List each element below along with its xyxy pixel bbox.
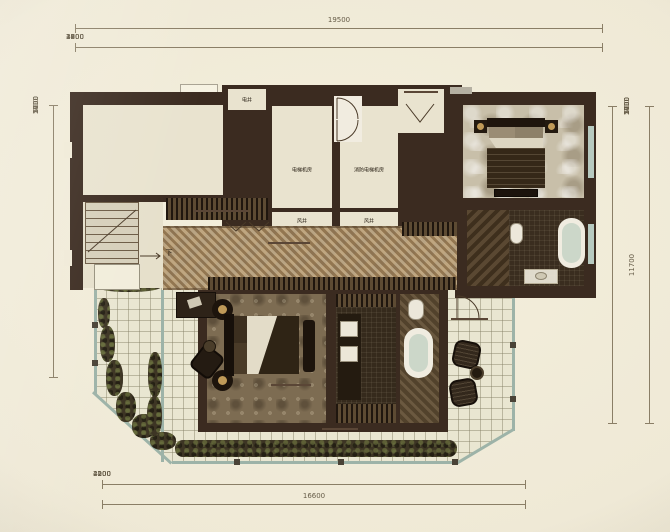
floor-plan-photo: 下 电井 电梯机房 消防电梯机房 风井 风井 水管井 衣帽间 CLOAKROOM… [0, 0, 670, 532]
corridor-label: 过道 CORRIDOR [268, 242, 310, 244]
cloakroom-label-zh: 衣帽间 [195, 211, 216, 212]
dimension-bottom-segments: 21002000420042004100 [102, 470, 526, 490]
water-shaft-door-icon [406, 104, 434, 122]
dimension-top-segments: 1000260012002400480038003700 [75, 33, 603, 53]
balcony-bottom-label-en: BALCONY [323, 429, 344, 430]
dimension-right-total-value: 11700 [628, 254, 636, 276]
water-pipe-shaft-label-zh: 水管井 [405, 92, 420, 93]
cloakroom-label: 衣帽间 CLOAKROOM [194, 210, 248, 212]
air-shaft-b-label: 风井 [364, 218, 374, 225]
dimension-right-total: 11700 [634, 106, 656, 424]
balcony-bottom-label: 阳台 BALCONY [322, 428, 358, 430]
fire-elevator-machine-room-label: 消防电梯机房 [354, 167, 384, 174]
stair-break-line [88, 210, 136, 252]
master-bedroom-label: 主卧 M.BEDROOM [271, 384, 311, 386]
air-shaft-a-label: 风井 [297, 218, 307, 225]
stair-direction-arrow [140, 253, 160, 259]
water-pipe-shaft-label: 水管井 [404, 91, 438, 93]
dimension-top-total: 19500 [75, 18, 603, 32]
balcony-door-icon [457, 296, 479, 318]
dimension-value: 4100 [93, 470, 111, 478]
dimension-bottom-total-value: 16600 [303, 492, 325, 500]
sliding-door-icon [226, 222, 269, 231]
balcony-right-label: 阳台 BALCONY [451, 318, 488, 320]
balcony-bottom-label-zh: 阳台 [323, 429, 337, 430]
stairs-down-label: 下 [166, 248, 173, 258]
corridor-label-zh: 过道 [269, 243, 283, 244]
linework-overlay [0, 0, 670, 532]
dimension-value: 5000 [32, 96, 40, 114]
master-bedroom-label-zh: 主卧 [272, 385, 286, 386]
cloakroom-label-en: CLOAKROOM [195, 211, 224, 212]
dimension-bottom-total: 16600 [102, 494, 526, 508]
balcony-right-label-zh: 阳台 [452, 319, 466, 320]
dimension-value: 5000 [623, 97, 631, 115]
master-bedroom-label-en: M.BEDROOM [272, 385, 301, 386]
corridor-label-en: CORRIDOR [269, 243, 293, 244]
elevator-machine-room-label: 电梯机房 [292, 167, 312, 174]
dimension-top-total-value: 19500 [328, 16, 350, 24]
double-door-icon [337, 98, 358, 141]
dimension-left-segments: 1700140070029005000 [24, 105, 58, 378]
electric-shaft-label: 电井 [242, 97, 252, 104]
dimension-value: 3700 [66, 33, 84, 41]
balcony-right-label-en: BALCONY [452, 319, 473, 320]
